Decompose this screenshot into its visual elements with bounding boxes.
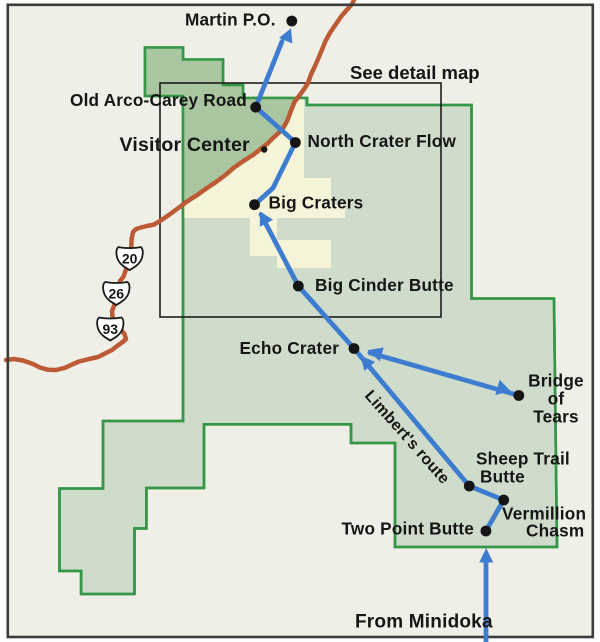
svg-text:Two Point Butte: Two Point Butte — [342, 519, 475, 539]
svg-text:Old Arco-Carey Road: Old Arco-Carey Road — [70, 90, 247, 110]
svg-text:of: of — [548, 389, 565, 409]
svg-text:Sheep Trail: Sheep Trail — [476, 449, 570, 469]
svg-text:Butte: Butte — [480, 467, 525, 487]
svg-text:20: 20 — [122, 250, 138, 266]
svg-text:See detail map: See detail map — [350, 62, 480, 83]
svg-text:Big Cinder Butte: Big Cinder Butte — [315, 275, 454, 295]
svg-text:Visitor Center: Visitor Center — [120, 134, 251, 156]
svg-text:26: 26 — [109, 285, 125, 301]
svg-text:Big Craters: Big Craters — [269, 193, 364, 213]
svg-text:Chasm: Chasm — [526, 521, 584, 541]
svg-text:Martin P.O.: Martin P.O. — [185, 10, 276, 30]
svg-text:Bridge: Bridge — [528, 371, 584, 391]
svg-text:Tears: Tears — [533, 407, 579, 427]
svg-text:Echo Crater: Echo Crater — [240, 338, 340, 358]
svg-text:From Minidoka: From Minidoka — [355, 612, 493, 633]
svg-text:North Crater Flow: North Crater Flow — [308, 131, 457, 151]
svg-text:93: 93 — [103, 321, 119, 337]
